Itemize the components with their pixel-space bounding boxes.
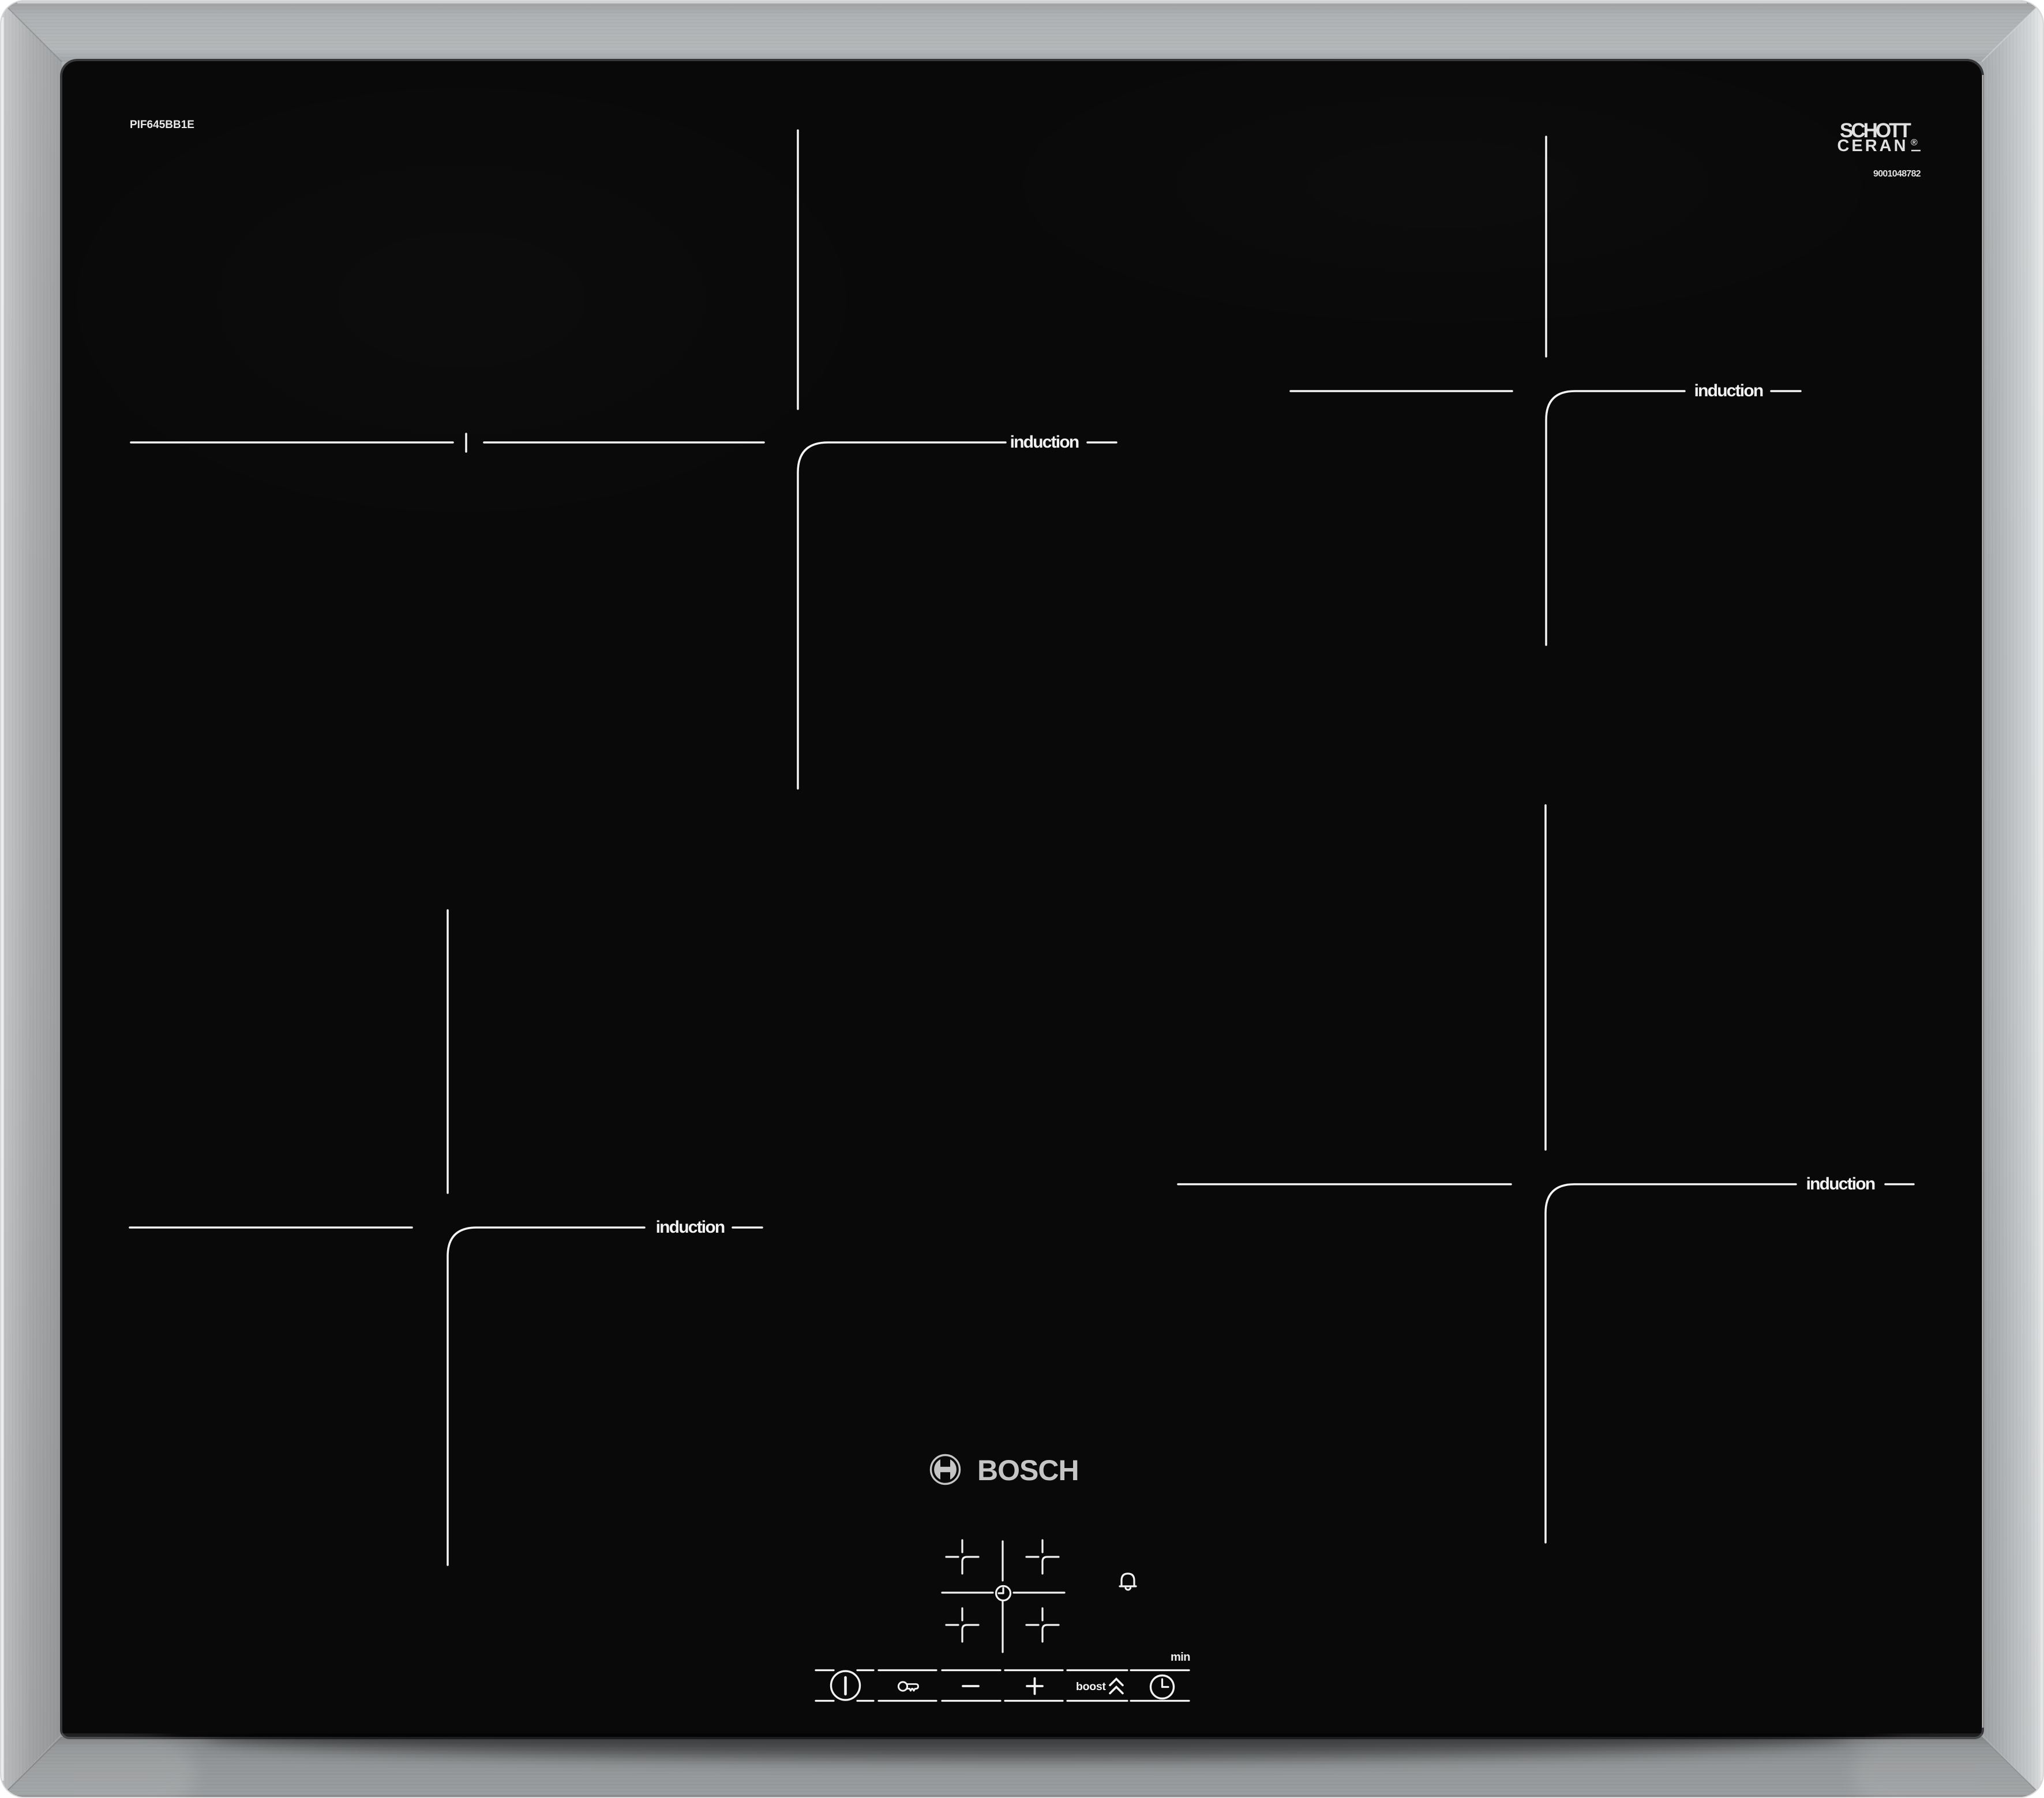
svg-text:induction: induction (1010, 433, 1079, 452)
svg-text:BOSCH: BOSCH (977, 1454, 1079, 1487)
svg-text:induction: induction (656, 1218, 725, 1237)
svg-text:PIF645BB1E: PIF645BB1E (130, 119, 194, 131)
svg-text:®: ® (1911, 138, 1918, 148)
svg-text:9001048782: 9001048782 (1873, 169, 1921, 179)
svg-text:boost: boost (1076, 1680, 1106, 1693)
svg-text:induction: induction (1694, 381, 1763, 400)
svg-text:induction: induction (1806, 1174, 1875, 1193)
svg-text:CERAN: CERAN (1837, 137, 1908, 155)
svg-text:min: min (1171, 1651, 1190, 1664)
